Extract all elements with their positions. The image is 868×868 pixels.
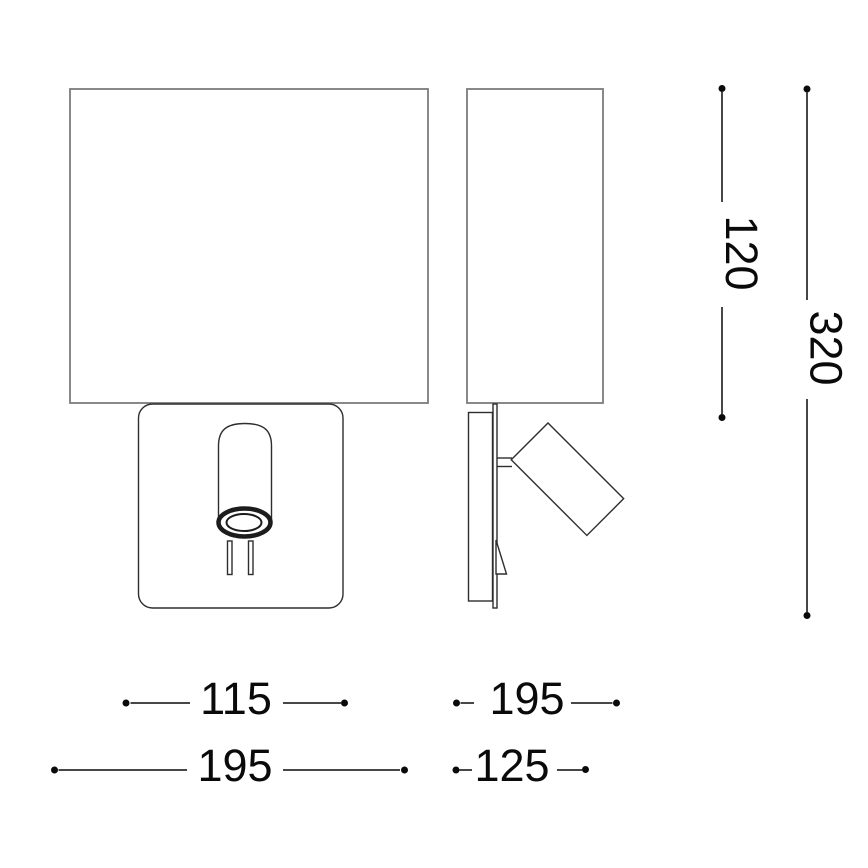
dim-endpoint-dot: [719, 85, 726, 92]
front-switch-prong-left: [228, 541, 233, 575]
dimension-shade-width-side: 195: [453, 673, 620, 724]
dim-endpoint-dot: [51, 767, 58, 774]
dimension-backplate-width: 115: [123, 673, 349, 724]
side-shade-rect: [467, 89, 603, 403]
dimension-shade-height: 120: [716, 85, 767, 421]
dim-endpoint-dot: [123, 700, 130, 707]
dim-label-mount-depth: 125: [474, 740, 549, 791]
dim-label-shade-height: 120: [716, 215, 767, 290]
wall-lamp-dimension-drawing: 120 320 115 195: [0, 0, 868, 868]
technical-drawing-canvas: 120 320 115 195: [0, 0, 868, 868]
dimension-shade-width-front: 195: [51, 740, 408, 791]
dim-label-shade-width-side: 195: [489, 673, 564, 724]
dim-label-total-height: 320: [801, 310, 852, 385]
side-switch-lever: [496, 540, 507, 574]
front-switch-prong-right: [249, 541, 254, 575]
dim-endpoint-dot: [613, 700, 620, 707]
dim-endpoint-dot: [401, 767, 408, 774]
side-backplate-edge: [493, 404, 497, 608]
dim-label-shade-width-front: 195: [197, 740, 272, 791]
dimension-mount-depth: 125: [453, 740, 590, 791]
front-shade-rect: [70, 89, 428, 403]
front-view: [70, 89, 428, 608]
dim-endpoint-dot: [582, 766, 589, 773]
dim-endpoint-dot: [719, 414, 726, 421]
dim-endpoint-dot: [341, 700, 348, 707]
side-wall-box: [469, 413, 493, 602]
dim-endpoint-dot: [453, 700, 460, 707]
side-spotlight-head: [511, 423, 623, 535]
dim-endpoint-dot: [804, 612, 811, 619]
dim-label-backplate-width: 115: [200, 673, 272, 724]
dim-endpoint-dot: [804, 86, 811, 93]
dim-endpoint-dot: [453, 767, 460, 774]
dimension-total-height: 320: [801, 86, 852, 620]
front-reading-light-lens-inner: [227, 514, 262, 531]
side-view: [467, 89, 624, 608]
